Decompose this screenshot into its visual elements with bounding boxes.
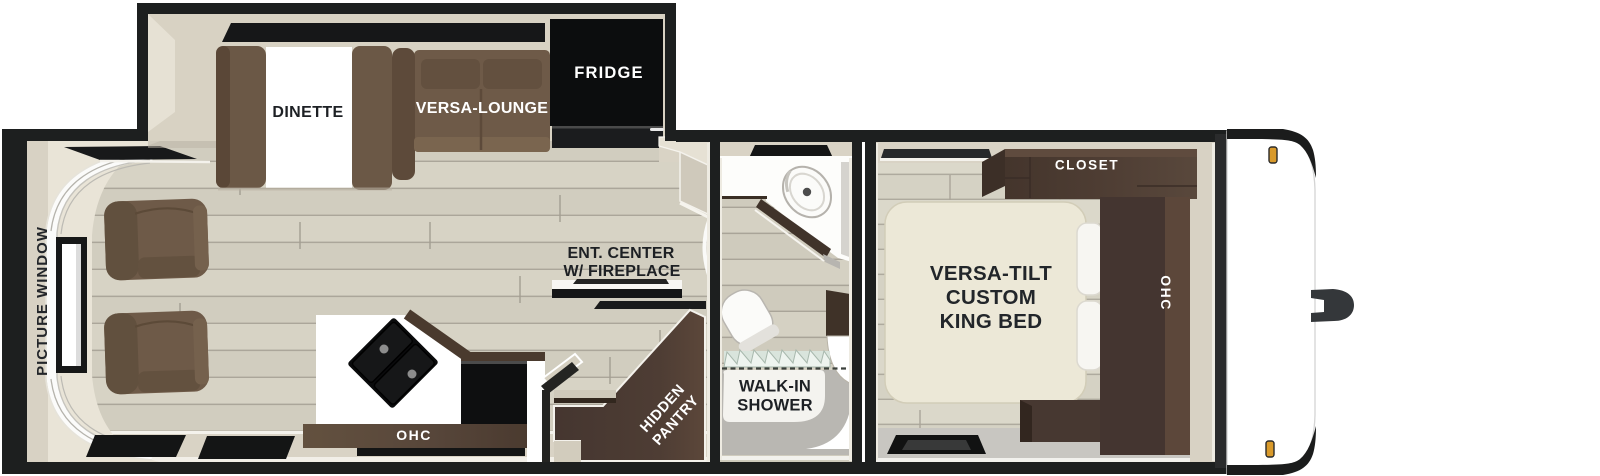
svg-text:OHC: OHC bbox=[396, 427, 432, 443]
svg-text:W/ FIREPLACE: W/ FIREPLACE bbox=[563, 263, 680, 280]
svg-text:WALK-IN: WALK-IN bbox=[739, 378, 811, 396]
svg-text:CUSTOM: CUSTOM bbox=[946, 286, 1036, 309]
svg-text:VERSA-LOUNGE: VERSA-LOUNGE bbox=[416, 100, 549, 117]
svg-text:VERSA-TILT: VERSA-TILT bbox=[930, 262, 1052, 285]
svg-text:DINETTE: DINETTE bbox=[272, 104, 343, 121]
svg-text:FRIDGE: FRIDGE bbox=[574, 64, 644, 82]
svg-text:OHC: OHC bbox=[1158, 275, 1174, 311]
svg-text:PICTURE WINDOW: PICTURE WINDOW bbox=[34, 226, 51, 376]
svg-text:ENT. CENTER: ENT. CENTER bbox=[567, 245, 674, 262]
svg-text:CLOSET: CLOSET bbox=[1055, 158, 1119, 173]
svg-text:SHOWER: SHOWER bbox=[737, 397, 812, 415]
svg-text:KING BED: KING BED bbox=[940, 310, 1043, 333]
